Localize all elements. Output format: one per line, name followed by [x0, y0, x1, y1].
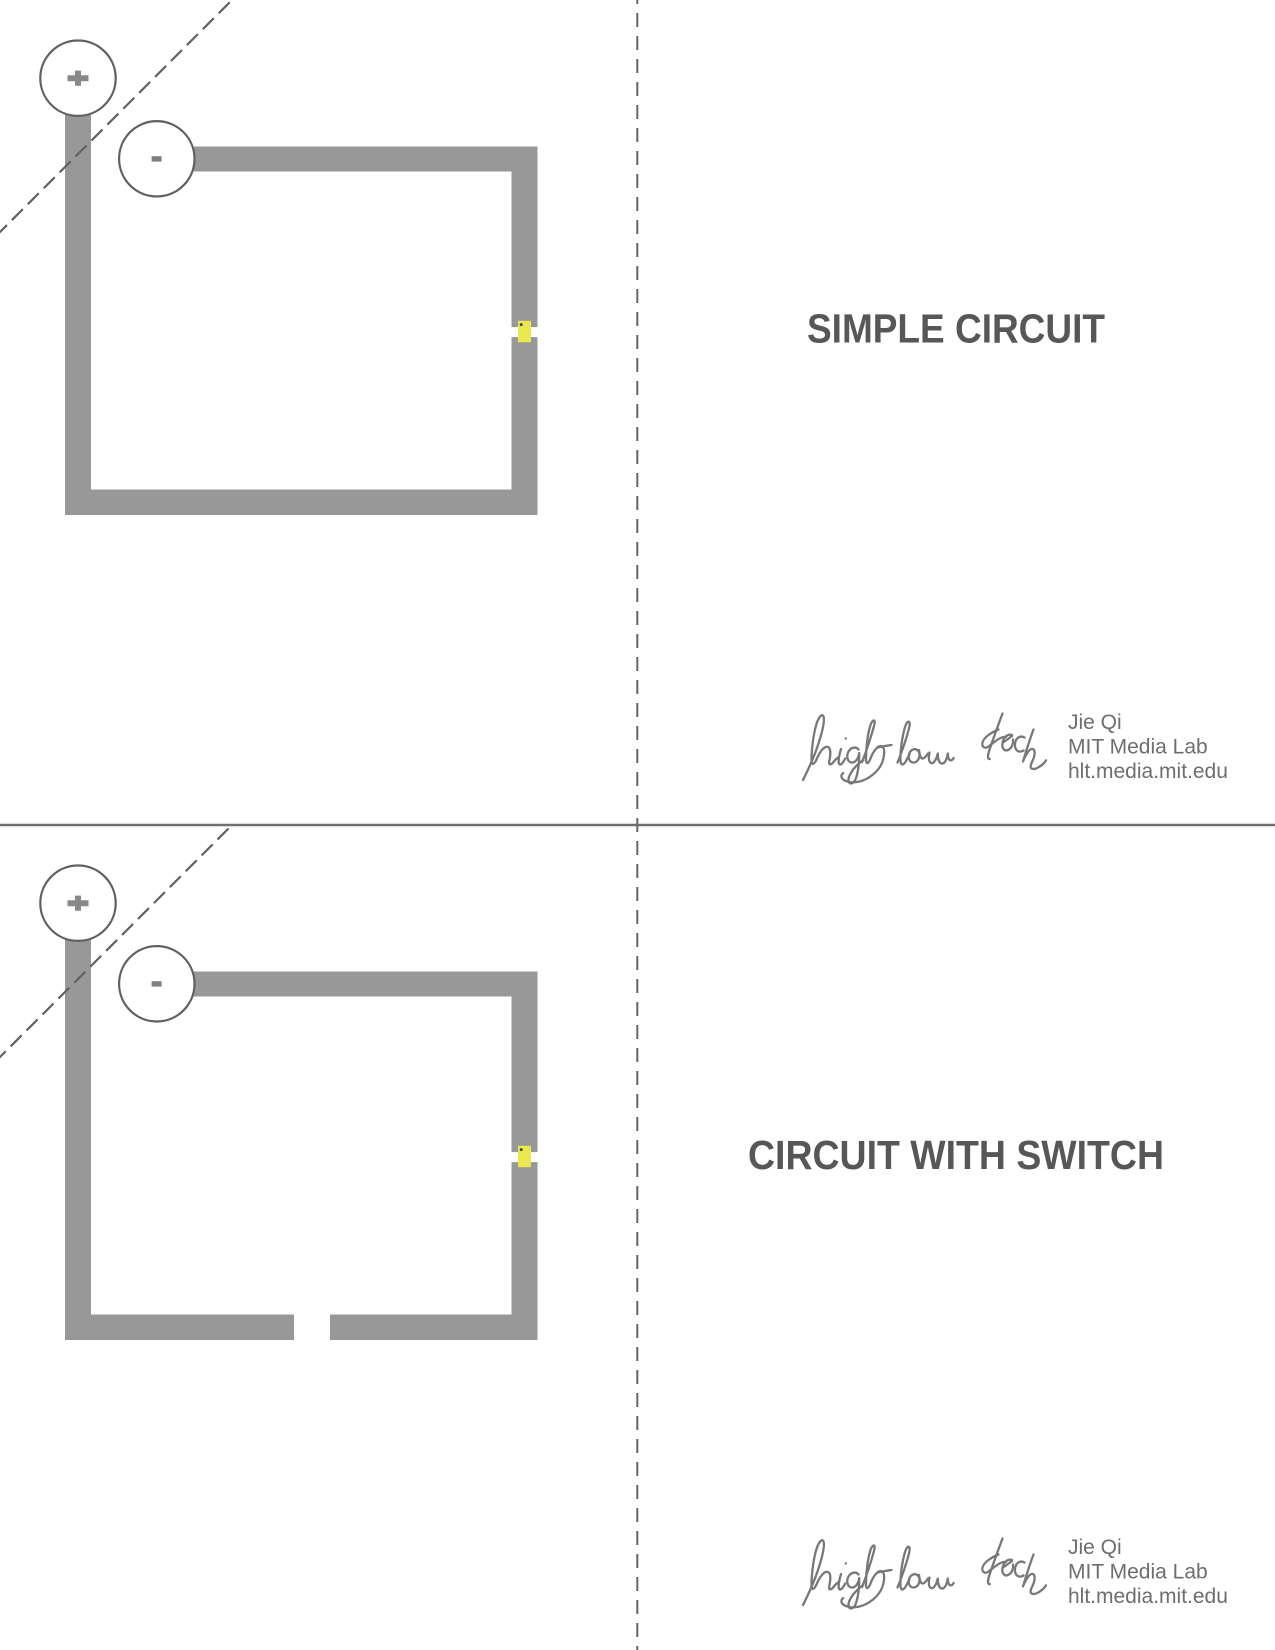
svg-text:Jie Qi: Jie Qi	[1068, 711, 1122, 734]
svg-text:SIMPLE CIRCUIT: SIMPLE CIRCUIT	[807, 305, 1105, 351]
svg-text:hlt.media.mit.edu: hlt.media.mit.edu	[1068, 760, 1228, 783]
svg-text:CIRCUIT WITH SWITCH: CIRCUIT WITH SWITCH	[748, 1132, 1164, 1178]
svg-text:hlt.media.mit.edu: hlt.media.mit.edu	[1068, 1585, 1228, 1608]
svg-text:MIT Media Lab: MIT Media Lab	[1068, 736, 1208, 759]
svg-text:MIT Media Lab: MIT Media Lab	[1068, 1561, 1208, 1584]
svg-text:Jie Qi: Jie Qi	[1068, 1536, 1122, 1559]
